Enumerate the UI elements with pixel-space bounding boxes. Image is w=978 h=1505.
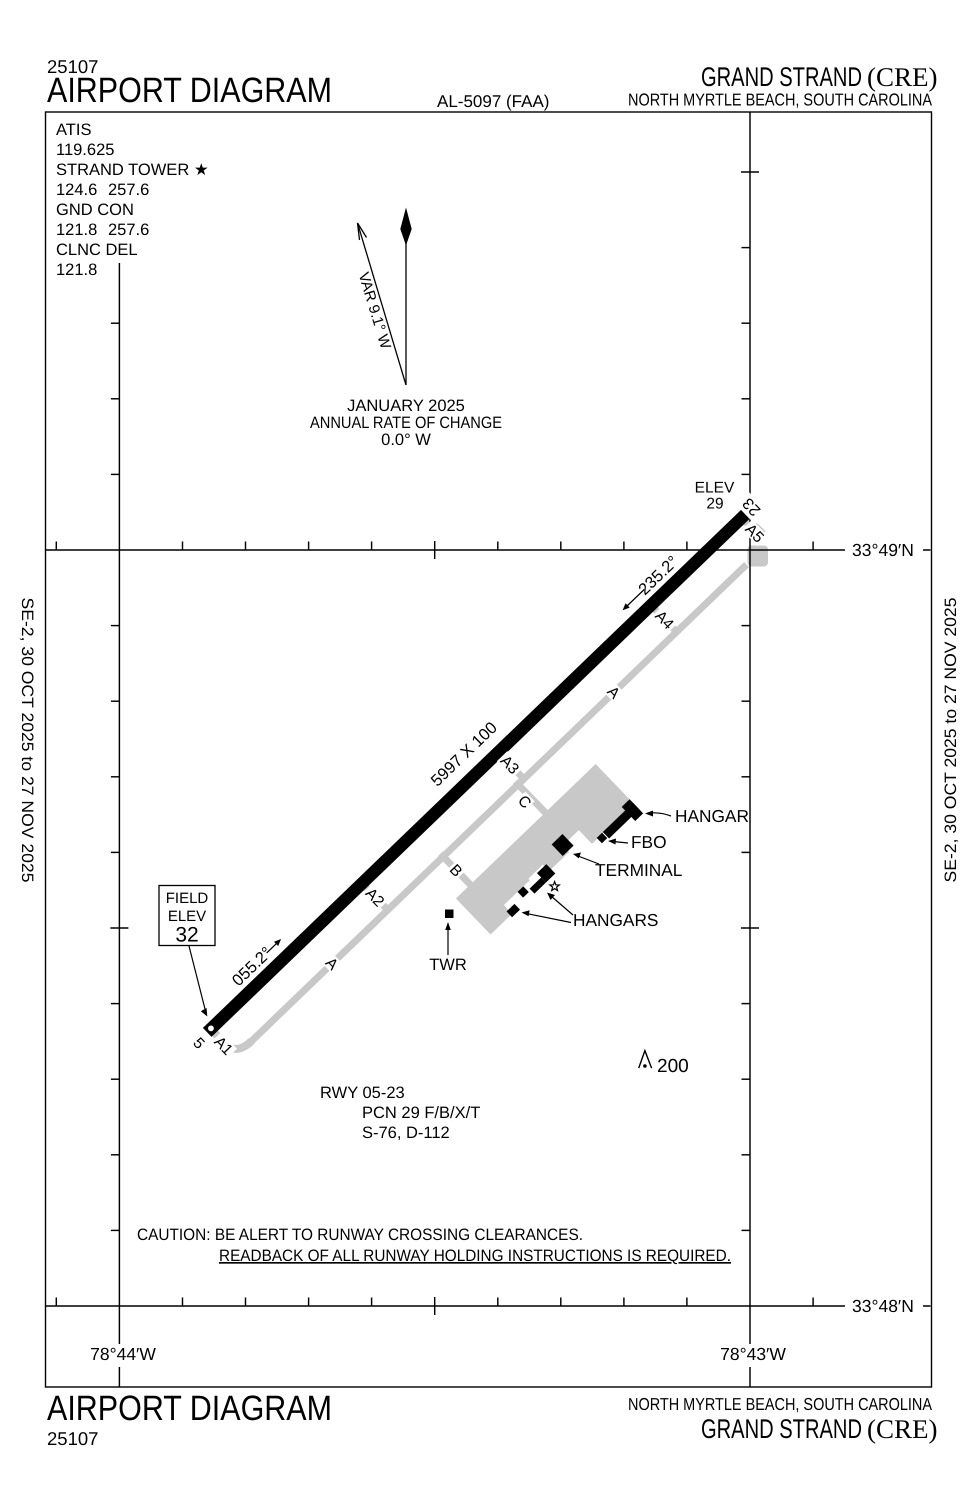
svg-text:STRAND TOWER ★: STRAND TOWER ★ xyxy=(56,161,209,179)
svg-text:GRAND STRAND: GRAND STRAND xyxy=(701,1414,862,1444)
svg-text:ELEV: ELEV xyxy=(168,908,206,925)
svg-text:JANUARY 2025: JANUARY 2025 xyxy=(347,397,465,415)
svg-text:PCN 29 F/B/X/T: PCN 29 F/B/X/T xyxy=(362,1104,480,1122)
svg-text:AL-5097 (FAA): AL-5097 (FAA) xyxy=(437,92,549,111)
svg-text:(CRE): (CRE) xyxy=(867,62,938,92)
svg-text:HANGARS: HANGARS xyxy=(573,910,658,930)
svg-text:32: 32 xyxy=(175,924,198,947)
svg-text:SE-2, 30 OCT 2025 to 27 NOV: SE-2, 30 OCT 2025 to 27 NOV 2025 xyxy=(18,598,36,883)
svg-text:TWR: TWR xyxy=(429,956,467,974)
svg-text:0.0° W: 0.0° W xyxy=(381,431,431,449)
svg-text:119.625: 119.625 xyxy=(56,141,114,159)
svg-text:33°49′N: 33°49′N xyxy=(852,540,914,560)
svg-text:CAUTION: BE ALERT TO RUNWAY CR: CAUTION: BE ALERT TO RUNWAY CROSSING CLE… xyxy=(137,1226,583,1244)
svg-text:RWY 05-23: RWY 05-23 xyxy=(320,1084,405,1102)
svg-text:AIRPORT DIAGRAM: AIRPORT DIAGRAM xyxy=(47,1389,332,1428)
svg-text:29: 29 xyxy=(706,496,723,513)
svg-text:SE-2, 30 OCT 2025 to 27 NOV: SE-2, 30 OCT 2025 to 27 NOV 2025 xyxy=(942,598,960,883)
svg-text:FBO: FBO xyxy=(631,832,667,852)
svg-text:33°48′N: 33°48′N xyxy=(852,1296,914,1316)
svg-text:78°43′W: 78°43′W xyxy=(720,1344,786,1364)
svg-text:GRAND STRAND: GRAND STRAND xyxy=(701,62,862,92)
svg-text:FIELD: FIELD xyxy=(166,890,209,907)
svg-text:ATIS: ATIS xyxy=(56,121,91,139)
svg-text:CLNC DEL: CLNC DEL xyxy=(56,241,138,259)
svg-text:121.8: 121.8 xyxy=(56,261,97,279)
svg-text:25107: 25107 xyxy=(47,1428,98,1449)
svg-text:NORTH MYRTLE BEACH, SOUTH CARO: NORTH MYRTLE BEACH, SOUTH CAROLINA xyxy=(628,1394,932,1414)
svg-text:TERMINAL: TERMINAL xyxy=(595,860,683,880)
svg-text:200: 200 xyxy=(657,1056,689,1077)
svg-text:GND CON: GND CON xyxy=(56,201,134,219)
svg-text:HANGAR: HANGAR xyxy=(675,806,749,826)
svg-text:(CRE): (CRE) xyxy=(867,1414,938,1444)
svg-text:S-76, D-112: S-76, D-112 xyxy=(362,1124,450,1142)
svg-text:ELEV: ELEV xyxy=(695,480,735,497)
svg-text:AIRPORT DIAGRAM: AIRPORT DIAGRAM xyxy=(47,71,332,110)
svg-text:ANNUAL RATE OF CHANGE: ANNUAL RATE OF CHANGE xyxy=(310,414,502,432)
svg-text:NORTH MYRTLE BEACH, SOUTH CARO: NORTH MYRTLE BEACH, SOUTH CAROLINA xyxy=(628,90,932,110)
svg-text:READBACK OF ALL RUNWAY HOLDING: READBACK OF ALL RUNWAY HOLDING INSTRUCTI… xyxy=(219,1247,731,1265)
svg-text:78°44′W: 78°44′W xyxy=(90,1344,156,1364)
